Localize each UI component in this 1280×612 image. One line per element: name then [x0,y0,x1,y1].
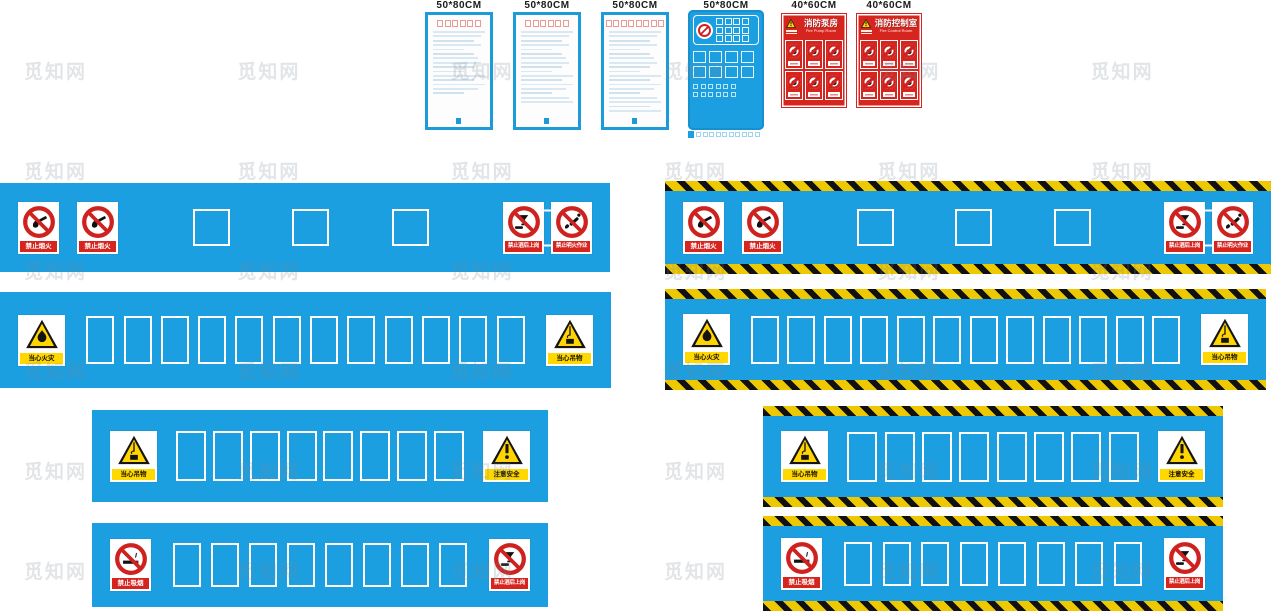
sign-card-warn-hanging: 当心吊物 [1201,314,1248,365]
placeholder-box [997,432,1027,482]
no-open-fire-icon [687,204,721,240]
caption-box [748,132,753,137]
text-line [433,31,485,33]
placeholder-strip [130,209,491,246]
sign-card-no-open-fire: 禁止烟火 [18,202,59,254]
title-char-box [658,20,664,27]
caption-box [735,132,740,137]
text-line [609,53,650,55]
placeholder-box [86,316,114,364]
text-line [609,97,657,99]
right-sign-group: 当心吊物 [1201,314,1248,365]
title-char-box [555,20,561,27]
fire-warning-icon [687,316,727,351]
placeholder-strip [834,542,1152,586]
hanging-load-warning-icon [114,433,154,468]
placeholder-box [1034,432,1064,482]
sign-label: 当心吊物 [1203,352,1246,363]
placeholder-box [459,316,487,364]
title-char-box [540,20,546,27]
sign-label: 禁止烟火 [79,241,116,252]
small-box [701,92,706,97]
hazard-stripe [763,601,1223,611]
content-box [725,66,738,78]
sign-label: 注意安全 [485,469,528,480]
content-box [709,51,722,63]
placeholder-box [959,432,989,482]
placeholder-box [292,209,329,246]
placeholder-box [897,316,925,364]
title-char-box [437,20,443,27]
placeholder-box [310,316,338,364]
placeholder-box [422,316,450,364]
banner-row2-left: 当心火灾 当心吊物 [0,292,611,388]
hazard-stripe [763,497,1223,507]
fire-warning-icon [22,317,62,352]
prohibition-cell [900,71,918,100]
placeholder-box [883,542,911,586]
sign-card-no-drink-on-duty: 禁止酒后上岗 [503,202,544,254]
prohibition-grid [785,40,843,100]
right-sign-group: 禁止酒后上岗 禁止明火作业 [1164,202,1253,254]
placeholder-box [1114,542,1142,586]
sign-card-no-smoking: 禁止吸烟 [110,539,151,591]
caption-box [703,132,708,137]
right-sign-group: 禁止酒后上岗 [489,539,530,591]
sign-label: 禁止酒后上岗 [1166,241,1203,252]
text-line [609,71,640,73]
watermark: 觅知网 [0,20,213,120]
panel-header: 消防控制室 Fire Control Room [860,18,918,37]
small-box [716,18,723,25]
caption-box [696,132,701,137]
placeholder-box [1116,316,1144,364]
placeholder-box [161,316,189,364]
hanging-load-warning-icon [1205,316,1245,351]
title-char-box [636,20,642,27]
placeholder-box [847,432,877,482]
placeholder-box [1075,542,1103,586]
placeholder-box [434,431,464,481]
text-line [433,57,478,59]
placeholder-strip [169,431,471,481]
no-smoking-icon [114,541,148,577]
banner-row1-right: 禁止烟火 禁止烟火 禁止酒后上岗 禁止明火作业 [665,181,1271,274]
small-box [742,27,749,34]
small-box [708,84,713,89]
left-sign-group: 禁止烟火 禁止烟火 [18,202,118,254]
banner-row3-left: 当心吊物 注意安全 [92,410,548,502]
sign-label: 禁止烟火 [20,241,57,252]
text-line [609,101,661,103]
text-line [609,31,661,33]
small-box [731,92,736,97]
placeholder-box [213,431,243,481]
size-label: 40*60CM [781,0,847,11]
title-char-box [613,20,619,27]
placeholder-box [751,316,779,364]
design-sheet: 50*80CM 50*80CM 50*80CM 50*80CM 40*60CM … [0,0,1280,612]
placeholder-strip [795,209,1152,246]
text-line [521,49,552,51]
banner-row4-right: 禁止吸烟 禁止酒后上岗 [763,516,1223,611]
header-squares [716,18,756,42]
sign-card-no-open-fire: 禁止烟火 [683,202,724,254]
small-box [725,27,732,34]
sign-label: 禁止酒后上岗 [1166,577,1203,588]
content-squares [693,51,759,78]
title-char-box [525,20,531,27]
text-line [609,84,661,86]
left-sign-group: 禁止吸烟 [110,539,151,591]
small-box [733,35,740,42]
placeholder-box [363,543,391,587]
sign-card-warn-fire: 当心火灾 [18,315,65,366]
text-line [609,35,657,37]
sign-label: 禁止吸烟 [783,577,820,588]
text-lines [516,31,578,103]
caption-box [716,132,721,137]
text-line [521,53,562,55]
placeholder-box [844,542,872,586]
placeholder-box [824,316,852,364]
left-sign-group: 禁止烟火 禁止烟火 [683,202,783,254]
sign-card-no-drink-on-duty: 禁止酒后上岗 [1164,202,1205,254]
prohibition-cell [805,71,823,100]
safety-warning-icon [487,433,527,468]
text-line [433,62,481,64]
small-box [725,35,732,42]
hazard-stripe [665,380,1266,390]
placeholder-box [885,432,915,482]
text-line [521,71,552,73]
placeholder-strip [840,432,1146,482]
placeholder-box [124,316,152,364]
banner-row1-left: 禁止烟火 禁止烟火 禁止酒后上岗 禁止明火作业 [0,183,610,272]
small-box [716,92,721,97]
text-line [433,53,474,55]
small-box [733,18,740,25]
caption-row [688,131,764,138]
placeholder-box [347,316,375,364]
placeholder-box [1006,316,1034,364]
panel-subtitle: Fire Pump Room [799,28,843,33]
placeholder-box [193,209,230,246]
warning-triangle-icon [785,18,797,34]
content-box [741,51,754,63]
no-smoking-icon [785,540,819,576]
sign-label: 禁止吸烟 [112,578,149,589]
title-box-row [428,20,490,27]
poster-template-1 [425,12,493,130]
title-char-box [621,20,627,27]
placeholder-box [933,316,961,364]
placeholder-box [970,316,998,364]
content-box [693,51,706,63]
placeholder-box [397,431,427,481]
placeholder-box [323,431,353,481]
placeholder-box [1079,316,1107,364]
text-line [433,40,474,42]
text-line [521,101,573,103]
caption-box [709,132,714,137]
panel-header: 消防泵房 Fire Pump Room [785,18,843,37]
text-line [521,75,573,77]
title-char-box [563,20,569,27]
small-box [716,27,723,34]
title-box-row [516,20,578,27]
hazard-stripe [665,181,1271,191]
no-open-fire-icon [81,204,115,240]
sign-label: 当心吊物 [783,469,826,480]
no-open-flame-icon [555,204,589,240]
text-line [521,66,562,68]
text-line [433,49,464,51]
sign-label: 当心火灾 [685,352,728,363]
size-label: 50*80CM [601,0,669,11]
prohibition-cell [860,71,878,100]
sign-card-no-open-flame-work: 禁止明火作业 [551,202,592,254]
small-box [742,18,749,25]
text-lines [604,31,666,112]
panel-subtitle: Fire Control Room [874,28,918,33]
header-box [693,15,759,45]
right-sign-group: 当心吊物 [546,315,593,366]
hazard-stripe [665,264,1271,274]
small-box [693,84,698,89]
text-line [433,35,481,37]
placeholder-box [173,543,201,587]
text-line [521,57,566,59]
sign-card-warn-hanging: 当心吊物 [110,431,157,482]
content-box [741,66,754,78]
text-line [433,84,485,86]
banner-row4-left: 禁止吸烟 禁止酒后上岗 [92,523,548,607]
no-open-fire-icon [22,204,56,240]
placeholder-box [860,316,888,364]
left-sign-group: 当心火灾 [18,315,65,366]
placeholder-box [955,209,992,246]
placeholder-box [392,209,429,246]
caption-boxes [696,132,760,137]
placeholder-box [1071,432,1101,482]
content-box [709,66,722,78]
text-line [609,92,640,94]
text-line [521,35,569,37]
text-line [433,66,474,68]
title-char-box [460,20,466,27]
sign-label: 禁止明火作业 [553,241,590,252]
sign-card-warn-safety: 注意安全 [483,431,530,482]
sign-card-no-open-fire: 禁止烟火 [742,202,783,254]
prohibition-cell [805,40,823,69]
text-line [609,44,657,46]
sign-label: 注意安全 [1160,469,1203,480]
watermark: 觅知网 [1067,20,1280,120]
placeholder-box [922,432,952,482]
text-line [521,79,562,81]
text-line [609,40,650,42]
caption-box [722,132,727,137]
placeholder-box [1037,542,1065,586]
text-line [521,97,569,99]
text-line [521,88,566,90]
footer-mark [544,118,549,124]
placeholder-box [250,431,280,481]
title-char-box [643,20,649,27]
placeholder-box [211,543,239,587]
text-line [433,71,464,73]
small-box [723,84,728,89]
prohibition-cell [785,40,803,69]
sign-card-warn-hanging: 当心吊物 [781,431,828,482]
hanging-load-warning-icon [550,317,590,352]
text-line [433,88,478,90]
title-box-row [604,20,666,27]
poster-template-2 [513,12,581,130]
small-box [723,92,728,97]
placeholder-box [1109,432,1139,482]
placeholder-box [287,543,315,587]
placeholder-box [287,431,317,481]
title-char-box [475,20,481,27]
banner-row2-right: 当心火灾 当心吊物 [665,289,1266,390]
prohibition-cell [880,71,898,100]
fire-pump-room-panel: 消防泵房 Fire Pump Room [781,13,847,108]
title-char-box [445,20,451,27]
text-line [609,57,654,59]
no-open-fire-icon [746,204,780,240]
hazard-stripe [665,289,1266,299]
placeholder-box [325,543,353,587]
title-char-box [651,20,657,27]
title-char-box [606,20,612,27]
text-line [521,62,569,64]
prohibition-cell [880,40,898,69]
text-line [521,40,562,42]
placeholder-box [249,543,277,587]
no-drink-icon [1168,204,1202,240]
sign-label: 禁止酒后上岗 [505,241,542,252]
placeholder-box [960,542,988,586]
no-drink-icon [507,204,541,240]
text-line [609,110,661,112]
sign-label: 禁止明火作业 [1214,241,1251,252]
sign-label: 当心吊物 [112,469,155,480]
no-drink-icon [1168,540,1202,576]
small-box [731,84,736,89]
small-box [708,92,713,97]
left-sign-group: 当心火灾 [683,314,730,365]
placeholder-box [857,209,894,246]
small-box [693,92,698,97]
safety-warning-icon [1162,433,1202,468]
sign-card-warn-hanging: 当心吊物 [546,315,593,366]
right-sign-group: 禁止酒后上岗 禁止明火作业 [503,202,592,254]
sign-card-no-open-fire: 禁止烟火 [77,202,118,254]
prohibition-cell [825,71,843,100]
text-line [609,75,661,77]
text-line [521,31,573,33]
placeholder-box [998,542,1026,586]
caption-box [729,132,734,137]
sign-card-warn-safety: 注意安全 [1158,431,1205,482]
text-line [609,66,650,68]
placeholder-box [198,316,226,364]
prohibition-cell [900,40,918,69]
text-line [609,62,657,64]
no-open-flame-icon [1216,204,1250,240]
sign-label: 当心吊物 [548,353,591,364]
placeholder-box [273,316,301,364]
sign-card-no-drink-on-duty: 禁止酒后上岗 [1164,538,1205,590]
placeholder-box [921,542,949,586]
placeholder-box [235,316,263,364]
size-label: 50*80CM [513,0,581,11]
caption-mark [688,131,694,138]
watermark: 觅知网 [213,20,426,120]
left-sign-group: 当心吊物 [110,431,157,482]
caption-box [755,132,760,137]
sign-label: 禁止酒后上岗 [491,578,528,589]
small-box [701,84,706,89]
text-line [521,92,552,94]
text-line [433,79,474,81]
right-sign-group: 禁止酒后上岗 [1164,538,1205,590]
panel-title: 消防控制室 [874,18,918,28]
footer-mark [632,118,637,124]
placeholder-strip [163,543,477,587]
placeholder-box [1054,209,1091,246]
blue-sign-template [688,10,764,130]
small-squares [693,84,739,97]
left-sign-group: 当心吊物 [781,431,828,482]
text-line [433,44,481,46]
mini-prohibition-icon [696,22,713,39]
sign-card-no-smoking: 禁止吸烟 [781,538,822,590]
placeholder-box [1043,316,1071,364]
text-line [521,84,573,86]
sign-label: 禁止烟火 [744,241,781,252]
placeholder-strip [742,316,1189,364]
title-char-box [467,20,473,27]
hazard-stripe [763,406,1223,416]
text-lines [428,31,490,94]
hazard-stripe [763,516,1223,526]
right-sign-group: 注意安全 [1158,431,1205,482]
placeholder-box [439,543,467,587]
title-char-box [548,20,554,27]
hanging-load-warning-icon [785,433,825,468]
small-box [742,35,749,42]
fire-control-room-panel: 消防控制室 Fire Control Room [856,13,922,108]
title-char-box [628,20,634,27]
placeholder-box [497,316,525,364]
placeholder-box [385,316,413,364]
prohibition-cell [785,71,803,100]
text-line [433,75,485,77]
placeholder-box [401,543,429,587]
text-line [609,106,650,108]
placeholder-box [176,431,206,481]
small-box [716,84,721,89]
size-label: 40*60CM [856,0,922,11]
sign-label: 当心火灾 [20,353,63,364]
text-line [609,49,640,51]
footer-mark [456,118,461,124]
sign-card-no-drink-on-duty: 禁止酒后上岗 [489,539,530,591]
size-label: 50*80CM [425,0,493,11]
